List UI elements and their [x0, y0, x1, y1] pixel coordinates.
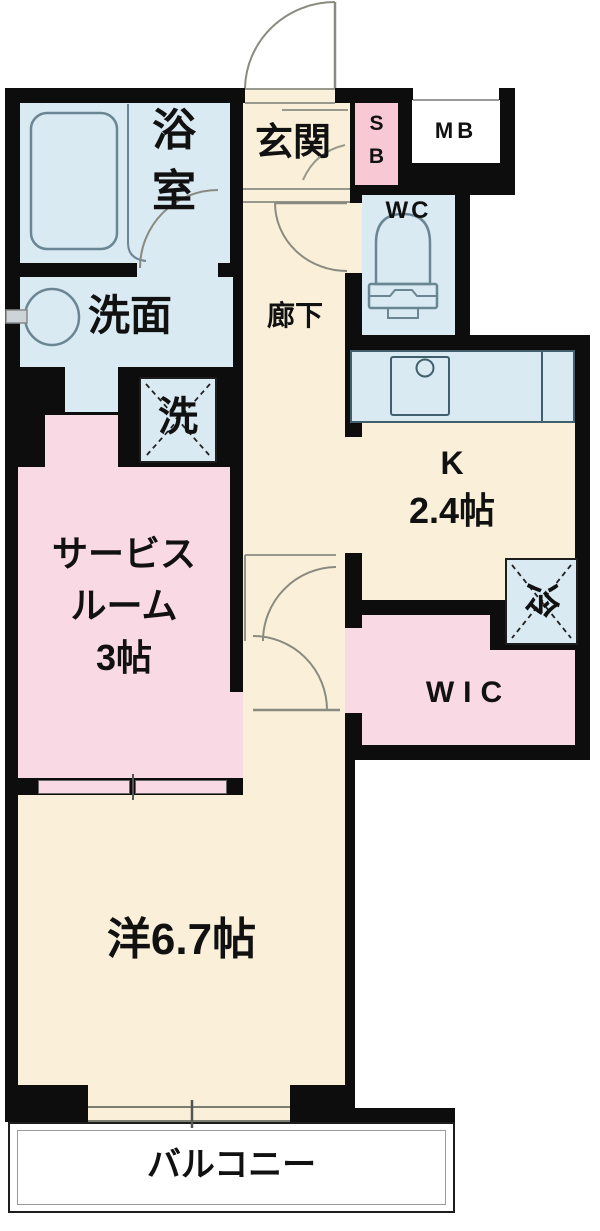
- western-room-label: 洋6.7帖: [18, 915, 345, 966]
- wic-door-opening: [345, 628, 362, 713]
- wic-label: WIC: [362, 676, 575, 711]
- hallway-label: 廊下: [245, 300, 345, 332]
- service-room-closet-nook: [45, 415, 118, 467]
- bathroom-door-opening: [137, 263, 218, 277]
- balcony-window: [88, 1106, 290, 1122]
- shoe-box-label-line2: B: [355, 141, 398, 174]
- service-room-label-line3: 3帖: [18, 632, 230, 684]
- bathroom-label-line1: 浴: [146, 106, 202, 157]
- meter-box-top-gap: [413, 88, 499, 101]
- western-room-window-ledge: [88, 1085, 290, 1108]
- washroom-label: 洗面: [30, 292, 230, 340]
- hallway-area: [243, 203, 345, 803]
- laundry-label: 洗: [139, 394, 217, 440]
- kitchen-size-label: 2.4帖: [362, 490, 542, 531]
- kitchen-counter: [350, 350, 575, 423]
- kitchen-label-k: K: [362, 445, 542, 482]
- bathroom-label-line2: 室: [146, 167, 202, 218]
- sliding-door-panel-right: [135, 780, 227, 794]
- bathroom-label: 浴 室: [146, 106, 202, 217]
- washroom-door-opening: [65, 367, 118, 412]
- wc-door-opening: [345, 203, 362, 273]
- service-room-door-opening: [225, 692, 243, 778]
- service-room-label-line2: ルーム: [18, 580, 230, 632]
- entrance-step: [243, 188, 350, 203]
- service-room-label: サービス ルーム 3帖: [18, 528, 230, 685]
- sliding-door-panel-left: [38, 780, 130, 794]
- front-door-swing-arc: [245, 2, 335, 88]
- kitchen-label: K 2.4帖: [362, 445, 542, 531]
- balcony-label: バルコニー: [8, 1146, 455, 1185]
- wc-label: WC: [362, 197, 455, 225]
- entrance-door-sill: [245, 88, 335, 104]
- refrigerator-label: 冷: [521, 564, 562, 637]
- hallway-kitchen-opening: [345, 437, 362, 553]
- entrance-label: 玄関: [243, 122, 343, 166]
- floor-plan: 浴 室 玄関 S B MB WC 洗面 洗 廊下 K 2.4帖 冷 WIC サー…: [0, 0, 600, 1231]
- wall-balcony-top: [340, 1108, 455, 1122]
- service-room-label-line1: サービス: [18, 528, 230, 580]
- shoe-box-label: S B: [355, 108, 398, 173]
- meter-box-label: MB: [412, 118, 500, 143]
- shoe-box-label-line1: S: [355, 108, 398, 141]
